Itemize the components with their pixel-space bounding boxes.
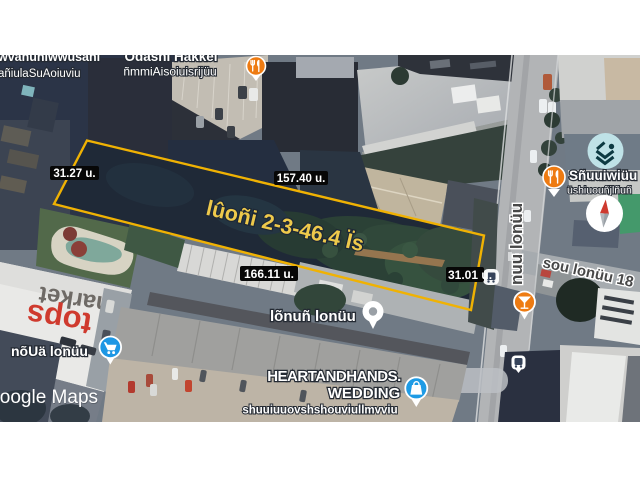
svg-text:157.40 u.: 157.40 u.: [277, 173, 326, 185]
svg-text:nuu lonüu: nuu lonüu: [507, 203, 526, 285]
svg-text:Google Maps: Google Maps: [0, 387, 98, 408]
svg-text:üshiuouñjlñuñ: üshiuouñjlñuñ: [567, 185, 632, 197]
svg-text:166.11 u.: 166.11 u.: [244, 267, 294, 281]
svg-text:31.01 u.: 31.01 u.: [448, 268, 492, 282]
svg-text:Sñuuiwiüu: Sñuuiwiüu: [569, 168, 637, 183]
svg-text:WEDDING: WEDDING: [328, 385, 401, 402]
svg-text:HEARTANDHANDS.: HEARTANDHANDS.: [267, 368, 401, 385]
svg-text:nõUä lonüu: nõUä lonüu: [11, 343, 88, 359]
svg-text:añiulaSuAoiuviu: añiulaSuAoiuviu: [0, 68, 80, 80]
svg-text:31.27 u.: 31.27 u.: [53, 168, 95, 180]
svg-text:shuuiuuovshshouviullmvviu: shuuiuuovshshouviullmvviu: [242, 405, 397, 417]
svg-text:ñmmiAisoiuisrijüu: ñmmiAisoiuisrijüu: [123, 65, 216, 79]
svg-text:lõnuñ lonüu: lõnuñ lonüu: [270, 308, 356, 325]
